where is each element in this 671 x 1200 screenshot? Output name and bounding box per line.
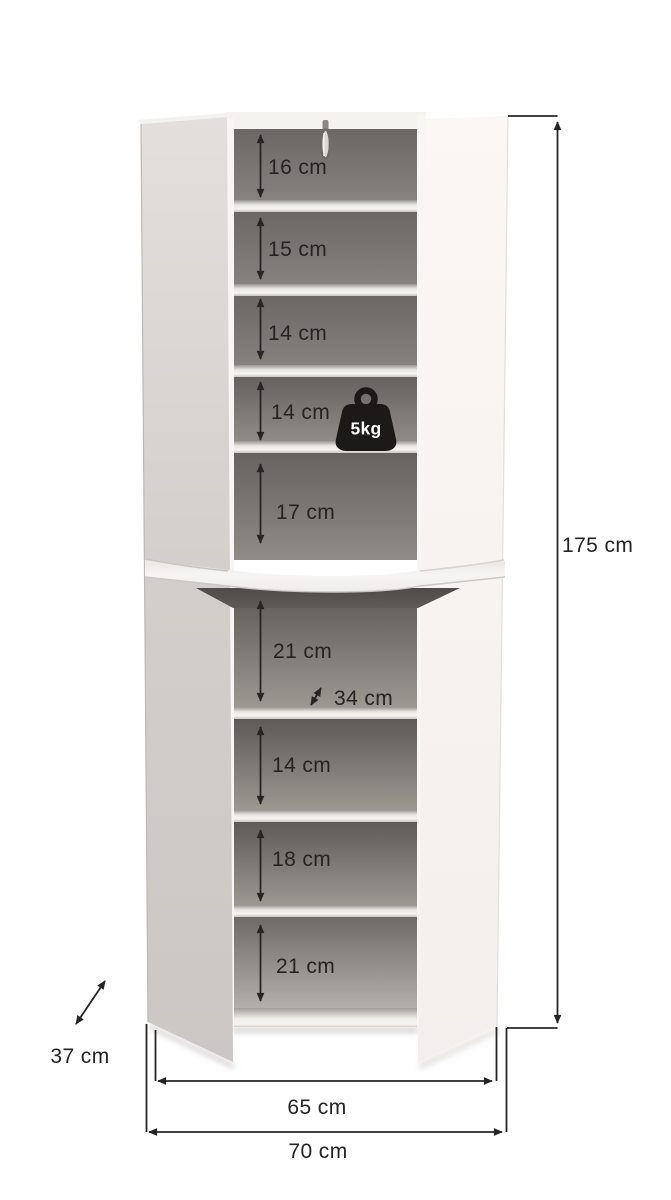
dimension-label-total-width: 70 cm	[288, 1141, 347, 1163]
cabinet-dimension-diagram: 16 cm 15 cm 14 cm 14 cm 17 cm 21 cm 34 c…	[0, 0, 671, 1200]
dimension-label-compartment-3: 14 cm	[268, 323, 327, 345]
cabinet-bottom-board	[233, 1008, 418, 1027]
dimension-label-compartment-7: 14 cm	[272, 755, 331, 777]
dimension-label-compartment-8: 18 cm	[272, 849, 331, 871]
shelf	[233, 810, 418, 822]
shelf	[233, 200, 418, 212]
dimension-label-shelf-depth: 34 cm	[334, 688, 393, 710]
shelf	[233, 365, 418, 377]
dimension-label-compartment-5: 17 cm	[276, 502, 335, 524]
dimension-label-total-height: 175 cm	[562, 535, 633, 557]
shelf	[233, 284, 418, 296]
cabinet-illustration	[0, 0, 671, 1200]
dimension-arrow-37cm-depth	[76, 981, 105, 1024]
left-door	[137, 113, 233, 1062]
dimension-label-compartment-6: 21 cm	[273, 641, 332, 663]
dimension-label-compartment-2: 15 cm	[268, 239, 327, 261]
dimension-label-compartment-9: 21 cm	[276, 956, 335, 978]
dimension-label-compartment-1: 16 cm	[268, 157, 327, 179]
shelf	[233, 905, 418, 917]
dimension-label-compartment-4: 14 cm	[271, 402, 330, 424]
dimension-label-cabinet-depth: 37 cm	[50, 1046, 109, 1068]
dimension-label-inner-width: 65 cm	[287, 1097, 346, 1119]
max-load-badge: 5kg	[350, 420, 381, 438]
